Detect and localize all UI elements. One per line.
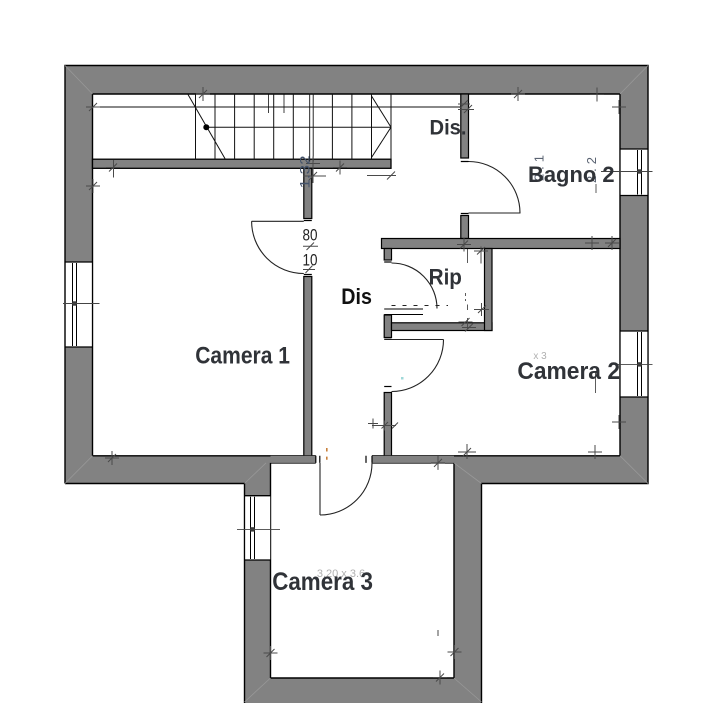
svg-text:80: 80: [303, 226, 318, 245]
svg-text:1.32: 1.32: [297, 155, 313, 188]
svg-text:10: 10: [303, 251, 318, 270]
svg-text:Dis.: Dis.: [430, 115, 467, 139]
svg-text:Rip: Rip: [429, 265, 462, 290]
svg-text:Camera 3: Camera 3: [272, 568, 373, 596]
svg-text:Bagno 2: Bagno 2: [528, 162, 615, 187]
svg-text:Dis: Dis: [341, 284, 372, 309]
svg-text:Camera 1: Camera 1: [195, 342, 290, 369]
svg-text:Camera 2: Camera 2: [517, 358, 620, 385]
